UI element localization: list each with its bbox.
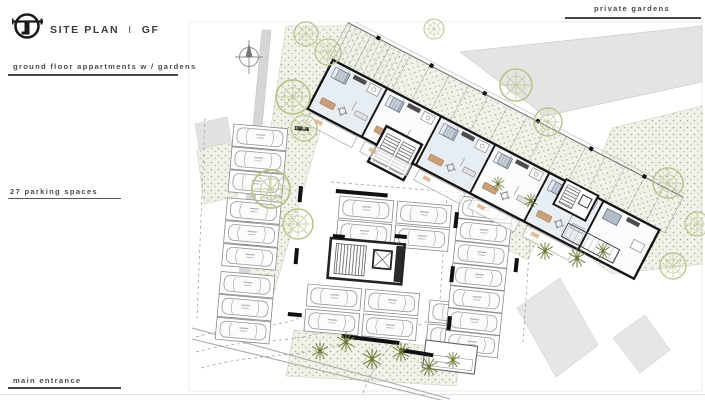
private-gardens-label: private gardens <box>572 4 692 13</box>
parking-space <box>228 170 284 197</box>
private-gardens-underline <box>565 17 701 19</box>
main-entrance-label: main entrance <box>13 376 81 385</box>
parking-space <box>338 196 394 223</box>
architect-logo <box>12 11 46 43</box>
parking-space <box>222 244 278 271</box>
title-suffix: GF <box>142 24 160 36</box>
parking-space <box>306 284 362 311</box>
parking-underline <box>8 198 121 199</box>
parking-space-27-box <box>423 340 478 374</box>
title-separator: I <box>128 24 133 36</box>
parking-space <box>226 198 282 225</box>
parking-space <box>232 124 288 151</box>
parking-space <box>224 221 280 248</box>
parking-space <box>215 317 271 344</box>
parking-space <box>362 314 418 341</box>
main-entrance-underline <box>8 387 121 389</box>
site-plan-drawing <box>0 0 705 400</box>
title-main: SITE PLAN <box>50 24 119 36</box>
page-title: SITE PLANIGF <box>50 24 160 36</box>
parking-core <box>328 238 405 284</box>
parking-space <box>230 147 286 174</box>
parking-space <box>396 201 452 228</box>
subtitle-label: ground floor appartments w / gardens <box>13 62 197 71</box>
parking-space <box>364 289 420 316</box>
parking-space <box>217 294 273 321</box>
parking-space <box>304 309 360 336</box>
parking-label: 27 parking spaces <box>10 187 98 196</box>
parking-space <box>219 271 275 298</box>
subtitle-underline <box>8 74 178 76</box>
